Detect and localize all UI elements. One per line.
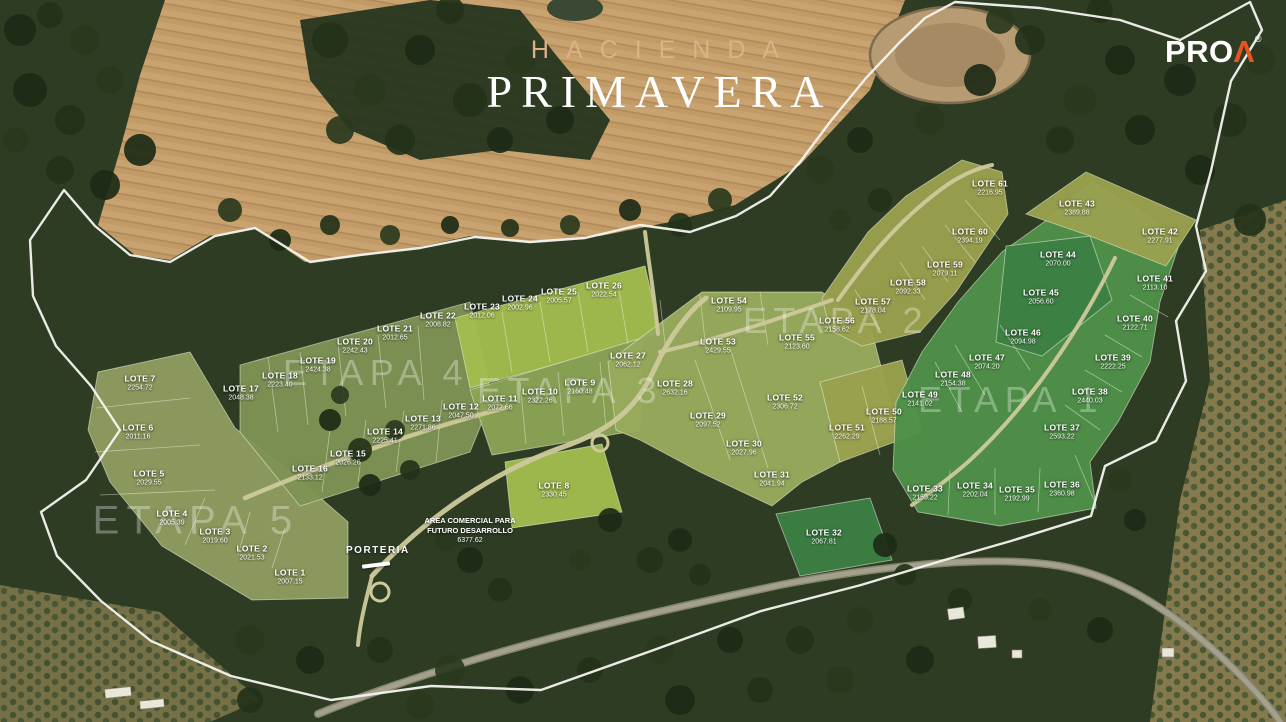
satellite-map-graphics [0,0,1286,722]
site-plan-map: ETAPA 1ETAPA 2ETAPA 3ETAPA 4ETAPA 5 LOTE… [0,0,1286,722]
